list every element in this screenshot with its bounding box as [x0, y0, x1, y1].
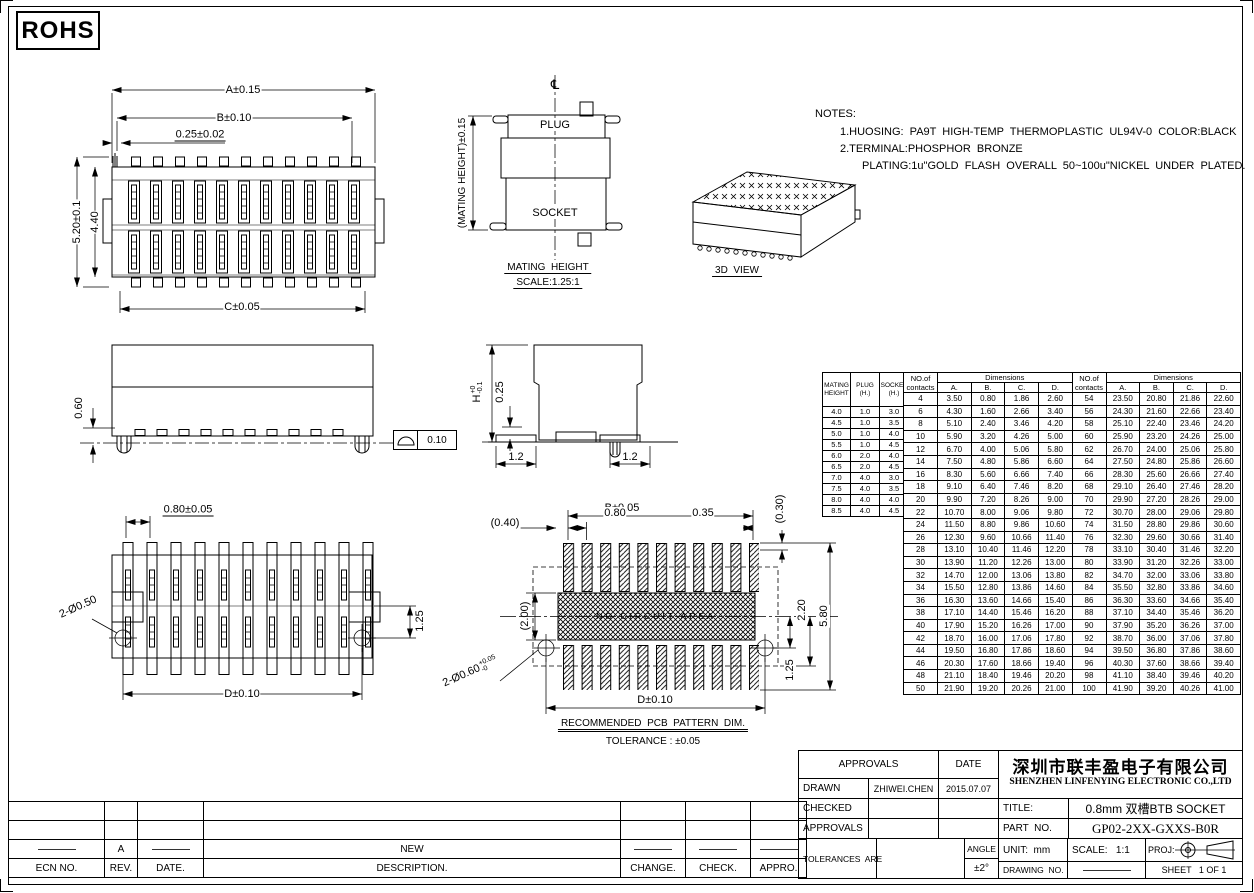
- table-cell: 18: [904, 481, 938, 494]
- table-cell: 96: [1072, 657, 1106, 670]
- table-cell: 31.20: [1140, 556, 1174, 569]
- table-cell: 17.80: [1038, 632, 1072, 645]
- table-cell: 23.50: [1106, 393, 1140, 406]
- table-cell: 36.30: [1106, 594, 1140, 607]
- dim-label-040: (0.40): [490, 517, 521, 529]
- dim-h-tolerance: +0-0.1: [470, 381, 484, 393]
- table-cell: 17.60: [971, 657, 1005, 670]
- table-cell: 26.40: [1140, 481, 1174, 494]
- table-cell: 12.30: [938, 531, 972, 544]
- table-cell: 60: [1072, 430, 1106, 443]
- table-cell: 20.80: [1140, 393, 1174, 406]
- plug-label: PLUG: [539, 119, 571, 131]
- table-cell: 28: [904, 544, 938, 557]
- table-cell: 2.66: [1005, 405, 1039, 418]
- table-cell: 30.60: [1207, 518, 1241, 531]
- table-cell: 16: [904, 468, 938, 481]
- table-cell: 36.20: [1207, 607, 1241, 620]
- dim-label-mating-height: (MATING HEIGHT)±0.15: [457, 117, 469, 229]
- table-cell: 32.80: [1140, 581, 1174, 594]
- table-cell: 88: [1072, 607, 1106, 620]
- table-cell: 3.40: [1038, 405, 1072, 418]
- table-cell: 17.86: [1005, 644, 1039, 657]
- table-row: 30 13.90 11.20 12.26 13.00 80 33.90 31.2…: [904, 556, 1241, 569]
- corner-mark: [0, 0, 13, 13]
- table-cell: 5.06: [1005, 443, 1039, 456]
- table-cell: 33.06: [1173, 569, 1207, 582]
- col-header: D.: [1207, 383, 1241, 393]
- table-cell: 36.26: [1173, 619, 1207, 632]
- table-cell: 21.10: [938, 670, 972, 683]
- table-cell: 98: [1072, 670, 1106, 683]
- table-cell: 37.10: [1106, 607, 1140, 620]
- table-cell: 6.0: [823, 451, 851, 462]
- table-row: 7.0 4.0 3.0: [823, 473, 909, 484]
- table-row: 32 14.70 12.00 13.06 13.80 82 34.70 32.0…: [904, 569, 1241, 582]
- table-cell: 29.60: [1140, 531, 1174, 544]
- table-cell: 38: [904, 607, 938, 620]
- table-row: 16 8.30 5.60 6.66 7.40 66 28.30 25.60 26…: [904, 468, 1241, 481]
- table-cell: 10.66: [1005, 531, 1039, 544]
- table-row: 6 4.30 1.60 2.66 3.40 56 24.30 21.60 22.…: [904, 405, 1241, 418]
- description-cell: NEW: [204, 840, 621, 859]
- approvals-label: APPROVALS: [798, 818, 869, 839]
- table-cell: 24.80: [1140, 455, 1174, 468]
- drawn-date: 2015.07.07: [938, 778, 999, 799]
- table-cell: 27.50: [1106, 455, 1140, 468]
- table-row: 5.5 1.0 4.5: [823, 440, 909, 451]
- table-cell: 24.00: [1140, 443, 1174, 456]
- table-cell: 21.00: [1038, 682, 1072, 695]
- table-cell: 20.20: [1038, 670, 1072, 683]
- table-cell: 35.50: [1106, 581, 1140, 594]
- table-cell: 4.0: [851, 484, 880, 495]
- dim-label-125-pcb: 1.25: [784, 658, 796, 681]
- table-row: 14 7.50 4.80 5.86 6.60 64 27.50 24.80 25…: [904, 455, 1241, 468]
- dim-label-d-pcb: D±0.10: [636, 694, 673, 706]
- dim-label-12-right: 1.2: [621, 451, 638, 463]
- dim-label-pitch-bottom: 0.80±0.05: [163, 504, 214, 517]
- table-cell: 29.86: [1173, 518, 1207, 531]
- table-cell: 37.00: [1207, 619, 1241, 632]
- table-cell: 34: [904, 581, 938, 594]
- table-cell: 1.60: [971, 405, 1005, 418]
- table-cell: 34.60: [1207, 581, 1241, 594]
- gdt-frame: 0.10: [393, 430, 457, 450]
- table-cell: 26: [904, 531, 938, 544]
- table-cell: 36.00: [1140, 632, 1174, 645]
- table-cell: 33.10: [1106, 544, 1140, 557]
- table-cell: 26.60: [1207, 455, 1241, 468]
- table-cell: 29.00: [1207, 493, 1241, 506]
- mating-height-table: MATING HEIGHT PLUG (H.) SOCKET (H.) 4.0 …: [822, 372, 909, 517]
- table-cell: 5.60: [971, 468, 1005, 481]
- dim-label-125-bottom: 1.25: [414, 609, 426, 632]
- table-cell: 13.80: [1038, 569, 1072, 582]
- table-cell: 68: [1072, 481, 1106, 494]
- table-row: 26 12.30 9.60 10.66 11.40 76 32.30 29.60…: [904, 531, 1241, 544]
- table-row: 8.0 4.0 4.0: [823, 495, 909, 506]
- table-cell: 22.40: [1140, 418, 1174, 431]
- table-cell: 19.46: [1005, 670, 1039, 683]
- table-row: 10 5.90 3.20 4.26 5.00 60 25.90 23.20 24…: [904, 430, 1241, 443]
- title-value: 0.8mm 双槽BTB SOCKET: [1068, 798, 1243, 819]
- view-scale-caption: SCALE:1.25:1: [513, 277, 582, 289]
- table-cell: 30: [904, 556, 938, 569]
- table-cell: 36.80: [1140, 644, 1174, 657]
- col-header: DATE.: [138, 859, 204, 878]
- table-cell: 18.70: [938, 632, 972, 645]
- table-cell: 3.20: [971, 430, 1005, 443]
- company-name-cn: 深圳市联丰盈电子有限公司: [1013, 761, 1229, 775]
- table-row: 46 20.30 17.60 18.66 19.40 96 40.30 37.6…: [904, 657, 1241, 670]
- dash-line: [1083, 870, 1131, 871]
- table-cell: 12.00: [971, 569, 1005, 582]
- table-cell: 11.46: [1005, 544, 1039, 557]
- table-cell: 18.40: [971, 670, 1005, 683]
- table-cell: 41.00: [1207, 682, 1241, 695]
- table-cell: 48: [904, 670, 938, 683]
- col-header: B.: [1140, 383, 1174, 393]
- dim-label-200: (2.00): [519, 601, 531, 632]
- table-cell: 39.20: [1140, 682, 1174, 695]
- table-cell: 33.60: [1140, 594, 1174, 607]
- table-cell: 15.40: [1038, 594, 1072, 607]
- table-cell: 8.26: [1005, 493, 1039, 506]
- table-cell: 11.40: [1038, 531, 1072, 544]
- table-cell: 54: [1072, 393, 1106, 406]
- table-header-row: NO.of contacts Dimensions NO.of contacts…: [904, 373, 1241, 383]
- part-no-value: GP02-2XX-GXXS-B0R: [1068, 818, 1243, 839]
- table-cell: 33.80: [1207, 569, 1241, 582]
- check-cell: [686, 840, 751, 859]
- gdt-value: 0.10: [418, 435, 456, 446]
- table-cell: 19.20: [971, 682, 1005, 695]
- centerline-symbol: ℄: [550, 79, 560, 91]
- table-cell: 24.20: [1207, 418, 1241, 431]
- table-cell: 16.26: [1005, 619, 1039, 632]
- table-cell: 13.06: [1005, 569, 1039, 582]
- table-cell: 94: [1072, 644, 1106, 657]
- table-cell: 16.80: [971, 644, 1005, 657]
- revision-row-a: A NEW: [9, 840, 807, 859]
- table-cell: 21.86: [1173, 393, 1207, 406]
- table-cell: 28.20: [1207, 481, 1241, 494]
- table-cell: 32.26: [1173, 556, 1207, 569]
- table-cell: 37.86: [1173, 644, 1207, 657]
- table-cell: 11.20: [971, 556, 1005, 569]
- table-cell: 9.86: [1005, 518, 1039, 531]
- table-cell: 70: [1072, 493, 1106, 506]
- table-cell: 5.00: [1038, 430, 1072, 443]
- table-cell: 8.00: [971, 506, 1005, 519]
- table-cell: 15.50: [938, 581, 972, 594]
- table-cell: 14.66: [1005, 594, 1039, 607]
- table-cell: 13.10: [938, 544, 972, 557]
- table-row: 6.0 2.0 4.0: [823, 451, 909, 462]
- table-row: 18 9.10 6.40 7.46 8.20 68 29.10 26.40 27…: [904, 481, 1241, 494]
- table-row: 40 17.90 15.20 16.26 17.00 90 37.90 35.2…: [904, 619, 1241, 632]
- table-row: 28 13.10 10.40 11.46 12.20 78 33.10 30.4…: [904, 544, 1241, 557]
- drawing-no-label: DRAWING NO.: [998, 861, 1068, 879]
- table-cell: 34.40: [1140, 607, 1174, 620]
- table-cell: 13.90: [938, 556, 972, 569]
- table-cell: 42: [904, 632, 938, 645]
- table-cell: 37.90: [1106, 619, 1140, 632]
- date-cell: [138, 840, 204, 859]
- corner-mark: [0, 879, 13, 892]
- table-cell: 40.20: [1207, 670, 1241, 683]
- table-cell: 6: [904, 405, 938, 418]
- third-angle-projection-icon: [1175, 839, 1237, 861]
- table-cell: 6.40: [971, 481, 1005, 494]
- table-cell: 33.90: [1106, 556, 1140, 569]
- table-cell: 35.46: [1173, 607, 1207, 620]
- table-cell: 16.20: [1038, 607, 1072, 620]
- table-cell: 4.00: [971, 443, 1005, 456]
- checked-label: CHECKED: [798, 798, 869, 819]
- table-cell: 40: [904, 619, 938, 632]
- table-row: 4 3.50 0.80 1.86 2.60 54 23.50 20.80 21.…: [904, 393, 1241, 406]
- table-cell: 17.00: [1038, 619, 1072, 632]
- table-cell: 6.66: [1005, 468, 1039, 481]
- corner-mark: [1240, 879, 1253, 892]
- revision-header-row: ECN NO. REV. DATE. DESCRIPTION. CHANGE. …: [9, 859, 807, 878]
- table-cell: 41.90: [1106, 682, 1140, 695]
- table-row: 34 15.50 12.80 13.86 14.60 84 35.50 32.8…: [904, 581, 1241, 594]
- table-cell: 28.30: [1106, 468, 1140, 481]
- table-cell: 8.0: [823, 495, 851, 506]
- tolerances-label: TOLERANCES ARE: [798, 838, 877, 879]
- pcb-caption: RECOMMENDED PCB PATTERN DIM.: [558, 718, 748, 732]
- checked-name: [868, 798, 939, 819]
- table-cell: 28.00: [1140, 506, 1174, 519]
- table-cell: 25.10: [1106, 418, 1140, 431]
- dim-h-base: H: [471, 395, 483, 403]
- table-cell: 21.90: [938, 682, 972, 695]
- table-cell: 10.60: [1038, 518, 1072, 531]
- dim-label-height: 5.20±0.1: [71, 200, 83, 245]
- table-cell: 38.70: [1106, 632, 1140, 645]
- dim-label-h: H+0-0.1: [470, 380, 484, 403]
- table-cell: 15.46: [1005, 607, 1039, 620]
- table-cell: 20.26: [1005, 682, 1039, 695]
- approvals-name: [868, 818, 939, 839]
- table-cell: 35.40: [1207, 594, 1241, 607]
- table-cell: 50: [904, 682, 938, 695]
- table-row: 24 11.50 8.80 9.86 10.60 74 31.50 28.80 …: [904, 518, 1241, 531]
- table-cell: 12.20: [1038, 544, 1072, 557]
- table-cell: 11.50: [938, 518, 972, 531]
- table-cell: 17.90: [938, 619, 972, 632]
- table-cell: 40.26: [1173, 682, 1207, 695]
- table-cell: 8.5: [823, 506, 851, 517]
- table-cell: 9.10: [938, 481, 972, 494]
- table-cell: 20: [904, 493, 938, 506]
- dim-label-12-left: 1.2: [507, 451, 524, 463]
- table-cell: 8: [904, 418, 938, 431]
- table-cell: 22.66: [1173, 405, 1207, 418]
- table-cell: 5.0: [823, 429, 851, 440]
- table-cell: 38.60: [1207, 644, 1241, 657]
- table-cell: 56: [1072, 405, 1106, 418]
- table-cell: 20.30: [938, 657, 972, 670]
- table-cell: 24.26: [1173, 430, 1207, 443]
- dash-line: [699, 849, 737, 850]
- table-row: 5.0 1.0 4.0: [823, 429, 909, 440]
- top-view: [65, 68, 465, 320]
- revision-empty-row: [9, 802, 807, 821]
- table-cell: 6.60: [1038, 455, 1072, 468]
- table-cell: 78: [1072, 544, 1106, 557]
- table-row: 8.5 4.0 4.5: [823, 506, 909, 517]
- table-cell: 32.00: [1140, 569, 1174, 582]
- col-header-dimensions: Dimensions: [1106, 373, 1241, 383]
- table-cell: 30.40: [1140, 544, 1174, 557]
- table-row: 7.5 4.0 3.5: [823, 484, 909, 495]
- table-cell: 5.10: [938, 418, 972, 431]
- dim-label-d-bottom: D±0.10: [223, 688, 260, 700]
- table-cell: 29.90: [1106, 493, 1140, 506]
- col-header: MATING HEIGHT: [823, 373, 851, 407]
- drawing-no-value: [1067, 861, 1146, 879]
- profile-symbol-icon: [394, 431, 418, 449]
- dim-label-030: (0.30): [774, 494, 786, 525]
- table-cell: 40.30: [1106, 657, 1140, 670]
- table-cell: 7.5: [823, 484, 851, 495]
- table-row: 12 6.70 4.00 5.06 5.80 62 26.70 24.00 25…: [904, 443, 1241, 456]
- table-cell: 64: [1072, 455, 1106, 468]
- table-cell: 22: [904, 506, 938, 519]
- table-cell: 58: [1072, 418, 1106, 431]
- table-cell: 32.30: [1106, 531, 1140, 544]
- table-cell: 41.10: [1106, 670, 1140, 683]
- dim-label-c: C±0.05: [223, 301, 260, 313]
- dim-label-pitch: 0.25±0.02: [175, 129, 226, 142]
- table-cell: 1.0: [851, 418, 880, 429]
- table-cell: 29.10: [1106, 481, 1140, 494]
- table-cell: 34.70: [1106, 569, 1140, 582]
- projection-cell: PROJ:: [1145, 838, 1243, 862]
- table-cell: 5.86: [1005, 455, 1039, 468]
- company-name-en: SHENZHEN LINFENYING ELECTRONIC CO.,LTD: [1009, 775, 1231, 789]
- title-label: TITLE:: [998, 798, 1069, 819]
- ecn-cell: [9, 840, 105, 859]
- table-cell: 14.40: [971, 607, 1005, 620]
- table-cell: 14: [904, 455, 938, 468]
- table-cell: 16.00: [971, 632, 1005, 645]
- table-cell: 86: [1072, 594, 1106, 607]
- table-cell: 16.30: [938, 594, 972, 607]
- table-cell: 100: [1072, 682, 1106, 695]
- table-cell: 10.40: [971, 544, 1005, 557]
- table-cell: 92: [1072, 632, 1106, 645]
- drawing-sheet: ROHS: [0, 0, 1254, 893]
- approvals-date: [938, 818, 999, 839]
- revision-table: A NEW ECN NO. REV. DATE. DESCRIPTION. CH…: [8, 801, 807, 878]
- note-line: PLATING:1u"GOLD FLASH OVERALL 50~100u"NI…: [862, 158, 1245, 175]
- col-header: D.: [1038, 383, 1072, 393]
- drawn-name: ZHIWEI.CHEN: [868, 778, 939, 799]
- three-d-view-caption: 3D VIEW: [712, 265, 762, 277]
- dim-label-standoff: 0.60: [73, 396, 85, 419]
- table-cell: 36: [904, 594, 938, 607]
- view-caption: MATING HEIGHT: [504, 262, 591, 274]
- dim-label-080: 0.80: [603, 507, 626, 519]
- table-cell: 7.20: [971, 493, 1005, 506]
- col-header: C.: [1173, 383, 1207, 393]
- dim-label-a: A±0.15: [225, 84, 262, 96]
- col-header-contacts: NO.of contacts: [1072, 373, 1106, 393]
- table-cell: 0.80: [971, 393, 1005, 406]
- table-cell: 2.60: [1038, 393, 1072, 406]
- table-cell: 9.60: [971, 531, 1005, 544]
- table-cell: 38.40: [1140, 670, 1174, 683]
- table-cell: 38.66: [1173, 657, 1207, 670]
- table-cell: 4.26: [1005, 430, 1039, 443]
- table-cell: 13.00: [1038, 556, 1072, 569]
- table-cell: 3.50: [938, 393, 972, 406]
- table-row: 4.0 1.0 3.0: [823, 407, 909, 418]
- table-cell: 25.80: [1207, 443, 1241, 456]
- table-cell: 82: [1072, 569, 1106, 582]
- table-header-row: MATING HEIGHT PLUG (H.) SOCKET (H.): [823, 373, 909, 407]
- revision-empty-row: [9, 821, 807, 840]
- col-header: REV.: [105, 859, 138, 878]
- table-cell: 44: [904, 644, 938, 657]
- dash-line: [38, 849, 76, 850]
- table-cell: 25.00: [1207, 430, 1241, 443]
- col-header-contacts: NO.of contacts: [904, 373, 938, 393]
- table-row: 36 16.30 13.60 14.66 15.40 86 36.30 33.6…: [904, 594, 1241, 607]
- table-cell: 5.90: [938, 430, 972, 443]
- table-cell: 66: [1072, 468, 1106, 481]
- dim-label-580: 5.80: [818, 604, 830, 627]
- table-cell: 37.06: [1173, 632, 1207, 645]
- col-header: B.: [971, 383, 1005, 393]
- table-cell: 21.60: [1140, 405, 1174, 418]
- table-cell: 23.40: [1207, 405, 1241, 418]
- table-cell: 27.20: [1140, 493, 1174, 506]
- table-cell: 30.70: [1106, 506, 1140, 519]
- table-cell: 4.80: [971, 455, 1005, 468]
- table-cell: 7.0: [823, 473, 851, 484]
- pcb-tolerance-caption: TOLERANCE : ±0.05: [603, 736, 703, 747]
- table-cell: 19.40: [1038, 657, 1072, 670]
- tol-upper: +0: [470, 381, 477, 393]
- proj-label: PROJ:: [1148, 845, 1175, 855]
- table-cell: 26.70: [1106, 443, 1140, 456]
- table-cell: 23.46: [1173, 418, 1207, 431]
- table-cell: 12.80: [971, 581, 1005, 594]
- dash-line: [760, 849, 798, 850]
- table-cell: 25.60: [1140, 468, 1174, 481]
- table-row: 50 21.90 19.20 20.26 21.00 100 41.90 39.…: [904, 682, 1241, 695]
- table-cell: 18.60: [1038, 644, 1072, 657]
- table-cell: 33.86: [1173, 581, 1207, 594]
- col-header: DESCRIPTION.: [204, 859, 621, 878]
- table-cell: 35.20: [1140, 619, 1174, 632]
- rev-cell: A: [105, 840, 138, 859]
- table-cell: 25.06: [1173, 443, 1207, 456]
- table-cell: 90: [1072, 619, 1106, 632]
- dash-line: [152, 849, 190, 850]
- table-cell: 28.26: [1173, 493, 1207, 506]
- table-cell: 1.0: [851, 440, 880, 451]
- table-cell: 8.20: [1038, 481, 1072, 494]
- col-header-dimensions: Dimensions: [938, 373, 1073, 383]
- table-cell: 4.30: [938, 405, 972, 418]
